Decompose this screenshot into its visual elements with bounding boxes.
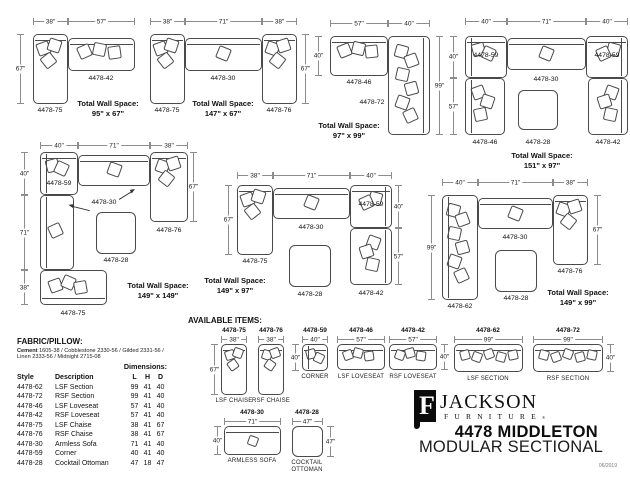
piece-label: 4478-59: [474, 52, 499, 59]
dimension-label: 67": [15, 65, 27, 74]
item-code: 4478-76: [259, 327, 283, 334]
piece-rsf-section: [388, 36, 430, 135]
total-wall-space: Total Wall Space: 149" x 99": [547, 288, 608, 308]
item-name: RSF CHAISE: [252, 398, 290, 404]
total-wall-space-label: Total Wall Space:: [192, 99, 253, 109]
pillow-icon: [574, 351, 586, 363]
pillow-icon: [473, 107, 488, 122]
brand-subtitle: FURNITURE®: [444, 412, 545, 421]
pillow-icon: [165, 155, 181, 171]
cell-h: 41: [141, 412, 154, 419]
dimension-label: 99": [561, 336, 575, 343]
brand-subtitle-text: FURNITURE: [444, 412, 542, 421]
item-code: 4478-62: [476, 327, 500, 334]
dimension-label: 57": [393, 252, 405, 261]
cell-desc: Armless Sofa: [55, 441, 128, 448]
dimension-label: 47": [325, 437, 337, 446]
dimension-label: 99": [482, 336, 496, 343]
cell-l: 40: [128, 450, 141, 457]
revision-date: 06/2019: [599, 463, 617, 469]
total-wall-space: Total Wall Space: 95" x 67": [77, 99, 138, 119]
total-wall-space: Total Wall Space: 97" x 99": [318, 121, 379, 141]
dimension-label: 71": [246, 418, 260, 425]
piece-label: 4478-75: [38, 107, 63, 114]
available-items-heading: AVAILABLE ITEMS:: [188, 316, 262, 325]
cell-d: 40: [154, 441, 167, 448]
dimension-line: 40": [315, 36, 322, 76]
pillow-icon: [562, 348, 575, 361]
table-row: 4478-62LSF Section994140: [17, 383, 167, 393]
pillow-icon: [453, 267, 470, 284]
dimension-line: 67": [302, 34, 309, 104]
dimension-line: 71": [78, 142, 150, 149]
dimension-label: 38": [273, 18, 287, 25]
item-rsf-chaise: [258, 344, 284, 395]
cell-l: 99: [128, 384, 141, 391]
cell-h: 41: [141, 384, 154, 391]
dimensions-table: Dimensions: Style Description L H D 4478…: [17, 362, 167, 468]
dimension-line: 99": [454, 336, 523, 343]
dimension-line: 40": [214, 426, 221, 455]
total-wall-space-label: Total Wall Space:: [511, 151, 572, 161]
dimension-line: 40": [40, 142, 78, 149]
cell-desc: LSF Chaise: [55, 422, 128, 429]
dimension-line: 71": [478, 179, 553, 186]
dimension-line: 40": [388, 20, 430, 27]
pillow-icon: [92, 42, 107, 57]
item-name: LSF CHAISE: [215, 398, 252, 404]
dimension-label: 40": [393, 202, 405, 211]
piece-rsf-loveseat: [68, 38, 135, 71]
piece-label: 4478-28: [298, 291, 323, 298]
item-rsf-loveseat: [389, 344, 437, 370]
cell-desc: RSF Section: [55, 393, 128, 400]
table-header-row: Style Description L H D: [17, 373, 167, 383]
dimension-line: 38": [262, 18, 297, 25]
piece-label: 4478-42: [596, 139, 621, 146]
dimension-label: 40": [19, 169, 31, 178]
piece-label: 4478-42: [359, 290, 384, 297]
total-wall-space-label: Total Wall Space:: [318, 121, 379, 131]
piece-label: 4478-30: [299, 224, 324, 231]
total-wall-space-value: 151" x 97": [511, 161, 572, 171]
dimension-label: 57": [354, 336, 368, 343]
cell-desc: RSF Loveseat: [55, 412, 128, 419]
dimension-label: 71": [540, 18, 554, 25]
dimension-line: 38": [237, 172, 273, 179]
piece-lsf-loveseat-vertical: [465, 78, 505, 135]
registered-mark: ®: [542, 415, 545, 420]
callout-arrow: [72, 206, 90, 211]
cell-d: 67: [154, 431, 167, 438]
dimension-line: 57": [330, 20, 388, 27]
dimension-label: 67": [223, 216, 235, 225]
dimension-label: 38": [227, 336, 241, 343]
piece-armless-sofa: [273, 188, 350, 219]
table-row: 4478-75LSF Chaise384167: [17, 421, 167, 431]
item-name: ARMLESS SOFA: [228, 458, 277, 464]
dimensions-heading: Dimensions:: [17, 362, 167, 373]
dimension-label: 40": [439, 353, 451, 362]
cell-d: 47: [154, 460, 167, 467]
piece-label: 4478-72: [360, 99, 385, 106]
cell-desc: LSF Loveseat: [55, 403, 128, 410]
dimension-line: 40": [465, 18, 507, 25]
pillow-icon: [550, 351, 563, 364]
piece-lsf-chaise: [33, 34, 68, 104]
piece-label: 4478-46: [473, 139, 498, 146]
pillow-icon: [364, 44, 378, 58]
piece-lsf-chaise-horizontal: [40, 270, 107, 305]
dimension-label: 67": [188, 183, 200, 192]
table-row: 4478-59Corner404140: [17, 449, 167, 459]
cell-l: 38: [128, 431, 141, 438]
pillow-icon: [495, 351, 507, 363]
col-length: L: [128, 374, 141, 381]
dimension-label: 40": [448, 53, 460, 62]
piece-label: 4478-42: [89, 75, 114, 82]
total-wall-space-value: 95" x 67": [77, 109, 138, 119]
pillow-icon: [312, 351, 325, 364]
dimension-label: 38": [564, 179, 578, 186]
total-wall-space-label: Total Wall Space:: [127, 281, 188, 291]
piece-label: 4478-62: [448, 303, 473, 310]
dimension-label: 99": [434, 81, 446, 90]
cell-style: 4478-62: [17, 384, 55, 391]
cell-d: 40: [154, 412, 167, 419]
piece-label: 4478-28: [526, 139, 551, 146]
pillow-icon: [603, 107, 618, 122]
cell-l: 57: [128, 403, 141, 410]
cell-h: 41: [141, 403, 154, 410]
pillow-icon: [538, 349, 550, 361]
cell-h: 18: [141, 460, 154, 467]
dimension-label: 71": [217, 18, 231, 25]
dimension-line: 40": [302, 336, 328, 343]
pillow-icon: [263, 358, 277, 372]
cell-l: 47: [128, 460, 141, 467]
dimension-line: 38": [21, 270, 28, 305]
piece-label: 4478-76: [157, 227, 182, 234]
piece-cocktail-ottoman: [96, 212, 136, 254]
cell-style: 4478-28: [17, 460, 55, 467]
pillow-icon: [447, 226, 462, 241]
dimension-label: 40": [402, 20, 416, 27]
pillow-icon: [459, 349, 471, 361]
item-code: 4478-30: [240, 409, 264, 416]
piece-armless-sofa: [507, 38, 586, 70]
piece-label: 4478-75: [155, 107, 180, 114]
callout-arrow: [119, 191, 132, 200]
dimension-label: 40": [605, 354, 617, 363]
cell-h: 41: [141, 393, 154, 400]
dimension-label: 38": [248, 172, 262, 179]
dimension-label: 40": [313, 52, 325, 61]
dimension-line: 67": [190, 152, 197, 222]
cell-h: 41: [141, 431, 154, 438]
dimension-label: 57": [448, 102, 460, 111]
dimension-line: 47": [327, 426, 334, 457]
dimension-line: 40": [607, 344, 614, 372]
dimension-label: 38": [264, 336, 278, 343]
dimension-line: 99": [428, 195, 435, 300]
pillow-icon: [566, 198, 582, 214]
piece-label: 4478-76: [267, 107, 292, 114]
item-code: 4478-75: [222, 327, 246, 334]
dimension-line: 67": [594, 195, 601, 265]
piece-cocktail-ottoman: [518, 90, 558, 130]
pillow-icon: [538, 45, 555, 62]
piece-armless-sofa: [185, 38, 262, 71]
piece-corner: [40, 152, 78, 195]
dimension-label: 67": [592, 226, 604, 235]
item-name: LSF LOVESEAT: [338, 374, 384, 380]
pillow-icon: [404, 81, 420, 97]
table-row: 4478-72RSF Section994140: [17, 392, 167, 402]
dimension-line: 57": [337, 336, 385, 343]
pillow-icon: [107, 45, 122, 60]
fabric-line-2: Linen 2333-56 / Midnight 2715-08: [17, 354, 101, 360]
item-code: 4478-46: [349, 327, 373, 334]
dimension-label: 40": [479, 18, 493, 25]
piece-label: 4478-76: [558, 268, 583, 275]
dimension-line: 99": [533, 336, 603, 343]
dimension-label: 40": [364, 172, 378, 179]
cell-style: 4478-72: [17, 393, 55, 400]
jackson-logo-mark: F: [414, 390, 436, 422]
item-lsf-section: [454, 344, 523, 372]
dimension-line: 40": [442, 179, 478, 186]
total-wall-space-value: 149" x 149": [127, 291, 188, 301]
pillow-icon: [395, 67, 410, 82]
item-cocktail-ottoman: [292, 426, 323, 457]
pillow-icon: [275, 37, 291, 53]
dimension-label: 47": [301, 418, 315, 425]
piece-rsf-chaise: [150, 152, 188, 222]
piece-label: 4478-28: [104, 257, 129, 264]
item-name: COCKTAIL: [291, 460, 322, 466]
item-name-line2: OTTOMAN: [291, 467, 322, 473]
col-style: Style: [17, 374, 55, 381]
cell-style: 4478-59: [17, 450, 55, 457]
pillow-icon: [507, 205, 524, 222]
cell-h: 41: [141, 422, 154, 429]
pillow-icon: [446, 253, 463, 270]
cell-style: 4478-75: [17, 422, 55, 429]
cell-desc: RSF Chaise: [55, 431, 128, 438]
dimension-label: 71": [19, 228, 31, 237]
cell-d: 40: [154, 384, 167, 391]
pillow-icon: [404, 347, 416, 359]
piece-rsf-loveseat-vertical: [350, 228, 392, 285]
dimension-label: 71": [107, 142, 121, 149]
dimension-label: 38": [162, 142, 176, 149]
item-lsf-chaise: [221, 344, 247, 395]
dimension-label: 38": [44, 18, 58, 25]
piece-cocktail-ottoman: [495, 250, 537, 292]
piece-label: 4478-59: [359, 201, 384, 208]
dimension-line: 67": [211, 344, 218, 395]
cell-h: 41: [141, 450, 154, 457]
table-row: 4478-30Armless Sofa714140: [17, 440, 167, 450]
pillow-icon: [106, 161, 123, 178]
dimension-line: 40": [441, 344, 448, 370]
item-lsf-loveseat: [337, 344, 385, 370]
dimension-label: 71": [509, 179, 523, 186]
piece-label: 4478-75: [61, 310, 86, 317]
cell-l: 99: [128, 393, 141, 400]
dimension-line: 71": [185, 18, 262, 25]
total-wall-space-value: 149" x 99": [547, 298, 608, 308]
dimension-line: 40": [292, 344, 299, 371]
total-wall-space: Total Wall Space: 151" x 97": [511, 151, 572, 171]
dimension-line: 71": [224, 418, 281, 425]
cell-d: 67: [154, 422, 167, 429]
item-name: RSF SECTION: [547, 376, 590, 382]
piece-label: 4478-30: [534, 76, 559, 83]
dimension-label: 38": [161, 18, 175, 25]
item-name: CORNER: [301, 374, 328, 380]
dimension-label: 40": [290, 353, 302, 362]
dimension-label: 40": [308, 336, 322, 343]
item-code: 4478-59: [303, 327, 327, 334]
dimension-line: 40": [586, 18, 628, 25]
total-wall-space-label: Total Wall Space:: [204, 276, 265, 286]
item-name: LSF SECTION: [467, 376, 509, 382]
piece-label: 4478-75: [243, 258, 268, 265]
brand-name: JACKSON: [440, 391, 537, 414]
dimension-line: 57": [395, 228, 402, 285]
pillow-icon: [471, 351, 484, 364]
pillow-icon: [269, 347, 282, 360]
total-wall-space: Total Wall Space: 147" x 67": [192, 99, 253, 119]
table-row: 4478-42RSF Loveseat574140: [17, 411, 167, 421]
col-description: Description: [55, 374, 128, 381]
pillow-icon: [303, 194, 320, 211]
piece-rsf-loveseat-vertical: [588, 78, 628, 135]
pillow-icon: [507, 349, 519, 361]
dimension-label: 40": [212, 436, 224, 445]
dimension-line: 67": [225, 185, 232, 255]
piece-label: 4478-59: [47, 180, 72, 187]
piece-label: 4478-59: [595, 52, 620, 59]
cell-d: 40: [154, 450, 167, 457]
total-wall-space-value: 147" x 67": [192, 109, 253, 119]
dimension-line: 71": [507, 18, 586, 25]
dimension-line: 57": [389, 336, 437, 343]
col-height: H: [141, 374, 154, 381]
piece-armless-sofa: [78, 155, 150, 186]
dimension-line: 38": [553, 179, 588, 186]
pillow-icon: [455, 240, 471, 256]
dimension-line: 40": [21, 152, 28, 195]
piece-lsf-loveseat: [330, 36, 388, 76]
total-wall-space-value: 149" x 97": [204, 286, 265, 296]
logo-letter: F: [419, 390, 435, 421]
dimension-line: 47": [292, 418, 323, 425]
dimension-line: 38": [258, 336, 284, 343]
piece-label: 4478-30: [503, 234, 528, 241]
pillow-icon: [415, 350, 426, 361]
piece-armless-sofa: [478, 198, 553, 229]
cell-l: 57: [128, 412, 141, 419]
item-armless-sofa: [224, 426, 281, 455]
dimension-label: 67": [300, 65, 312, 74]
piece-label: 4478-30: [211, 75, 236, 82]
cell-style: 4478-76: [17, 431, 55, 438]
dimension-label: 57": [352, 20, 366, 27]
cell-desc: Corner: [55, 450, 128, 457]
pillow-icon: [363, 350, 374, 361]
pillow-icon: [403, 52, 420, 69]
dimension-label: 57": [95, 18, 109, 25]
total-wall-space: Total Wall Space: 149" x 97": [204, 276, 265, 296]
cell-d: 40: [154, 403, 167, 410]
table-row: 4478-28Cocktail Ottoman471847: [17, 459, 167, 469]
piece-cocktail-ottoman: [289, 245, 331, 287]
piece-label: 4478-28: [504, 295, 529, 302]
pillow-icon: [47, 222, 64, 239]
dimension-line: 67": [17, 34, 24, 104]
dimension-line: 38": [150, 18, 185, 25]
fabric-pillow-heading: FABRIC/PILLOW:: [17, 337, 83, 346]
cell-l: 71: [128, 441, 141, 448]
item-rsf-section: [533, 344, 603, 372]
pillow-icon: [586, 349, 598, 361]
item-name: RSF LOVESEAT: [389, 374, 436, 380]
pillow-icon: [483, 348, 496, 361]
total-wall-space-value: 97" x 99": [318, 131, 379, 141]
dimension-line: 40": [395, 185, 402, 228]
dimension-label: 71": [305, 172, 319, 179]
pillow-icon: [365, 257, 380, 272]
dimension-label: 57": [406, 336, 420, 343]
piece-lsf-section: [442, 195, 478, 300]
cell-h: 41: [141, 441, 154, 448]
table-row: 4478-46LSF Loveseat574140: [17, 402, 167, 412]
pillow-icon: [215, 45, 232, 62]
cell-style: 4478-30: [17, 441, 55, 448]
piece-rsf-chaise: [553, 195, 588, 265]
piece-lsf-chaise: [150, 34, 185, 104]
spec-sheet: 38" 57" 67" 4478-75 4478-42 Total Wall S…: [0, 0, 630, 486]
dimension-label: 99": [426, 243, 438, 252]
dimension-label: 40": [600, 18, 614, 25]
dimension-label: 67": [209, 365, 221, 374]
cell-l: 38: [128, 422, 141, 429]
dimension-line: 57": [450, 78, 457, 135]
dimension-line: 99": [436, 36, 443, 135]
dimension-line: 71": [273, 172, 350, 179]
cell-d: 40: [154, 393, 167, 400]
piece-label: 4478-30: [92, 199, 117, 206]
dimension-line: 71": [21, 195, 28, 270]
pillow-icon: [352, 347, 364, 359]
cell-style: 4478-46: [17, 403, 55, 410]
col-depth: D: [154, 374, 167, 381]
category-title: MODULAR SECTIONAL: [419, 438, 603, 457]
pillow-icon: [73, 280, 88, 295]
pillow-icon: [247, 435, 260, 448]
total-wall-space-label: Total Wall Space:: [547, 288, 608, 298]
total-wall-space-label: Total Wall Space:: [77, 99, 138, 109]
dimension-line: 38": [33, 18, 68, 25]
item-code: 4478-28: [295, 409, 319, 416]
cell-style: 4478-42: [17, 412, 55, 419]
dimension-line: 38": [221, 336, 247, 343]
dimension-line: 40": [350, 172, 392, 179]
total-wall-space: Total Wall Space: 149" x 149": [127, 281, 188, 301]
